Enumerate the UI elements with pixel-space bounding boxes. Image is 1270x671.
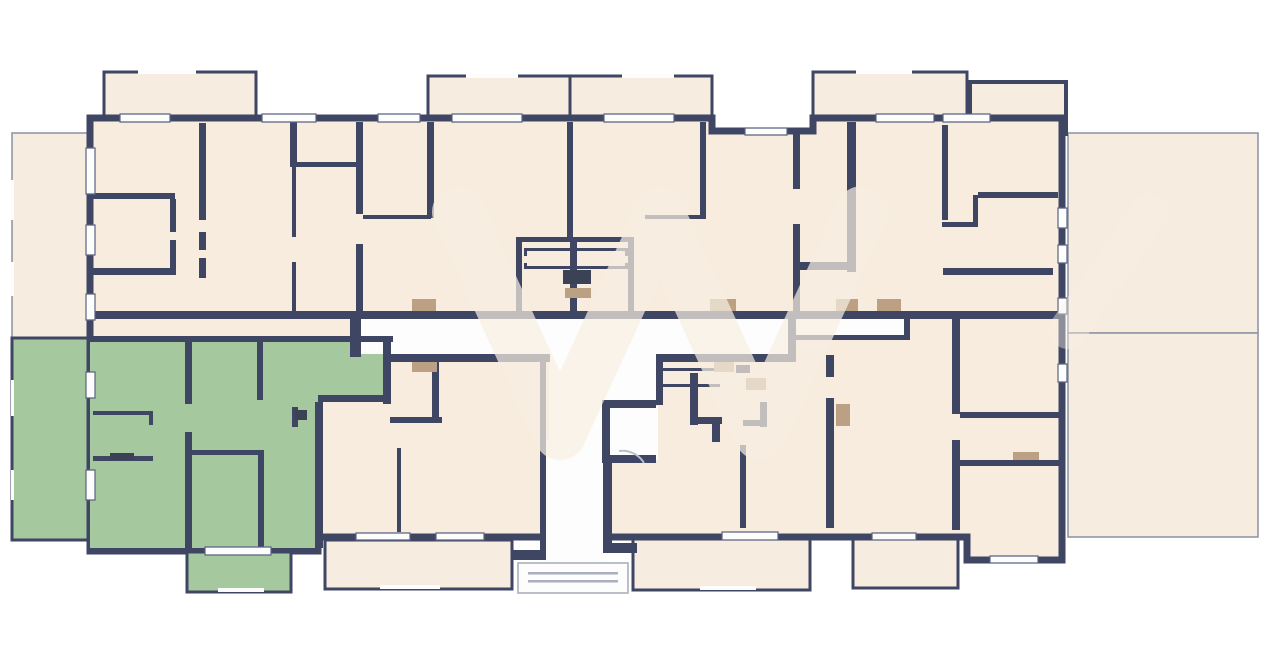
- balcony-bottom-3: [853, 534, 958, 588]
- highlighted-balcony[interactable]: [187, 552, 291, 592]
- balcony-top-4: [813, 72, 967, 118]
- terrace-right-bottom: [1068, 333, 1258, 537]
- terrace-left-top: [12, 133, 88, 338]
- balcony-bottom-2: [633, 538, 810, 590]
- porch-step: [528, 580, 618, 583]
- porch-outline: [518, 563, 628, 593]
- balcony-top-1: [104, 72, 256, 118]
- highlighted-terrace[interactable]: [12, 338, 88, 540]
- floor-plan-canvas: [0, 0, 1270, 671]
- balcony-bottom-1: [325, 540, 512, 589]
- floor-plan: [0, 0, 1270, 671]
- balcony-top-2: [428, 76, 570, 118]
- balcony-top-3: [570, 76, 712, 118]
- entrance-porch: [518, 563, 628, 593]
- porch-step: [528, 572, 618, 575]
